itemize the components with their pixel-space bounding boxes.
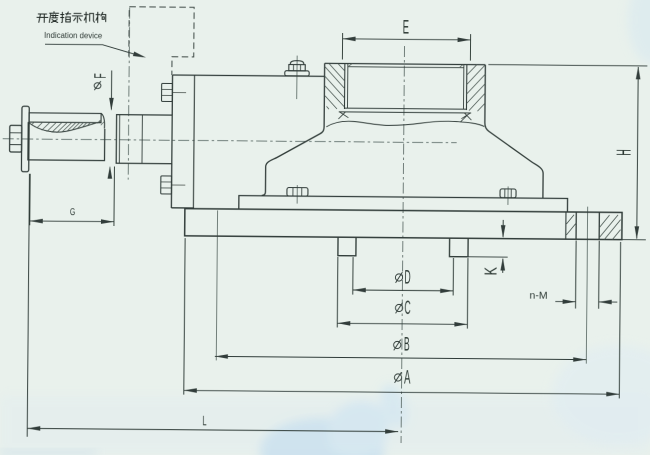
svg-text:F: F [91, 73, 110, 79]
svg-text:G: G [70, 206, 75, 218]
svg-text:Indication device: Indication device [44, 31, 102, 41]
svg-text:B: B [404, 335, 410, 356]
svg-text:L: L [202, 414, 206, 429]
svg-text:n-M: n-M [529, 289, 547, 301]
svg-text:K: K [481, 266, 501, 275]
svg-text:A: A [404, 367, 411, 389]
svg-text:C: C [404, 299, 411, 320]
svg-text:H: H [614, 149, 636, 156]
svg-text:D: D [404, 268, 410, 289]
svg-text:E: E [403, 17, 410, 39]
